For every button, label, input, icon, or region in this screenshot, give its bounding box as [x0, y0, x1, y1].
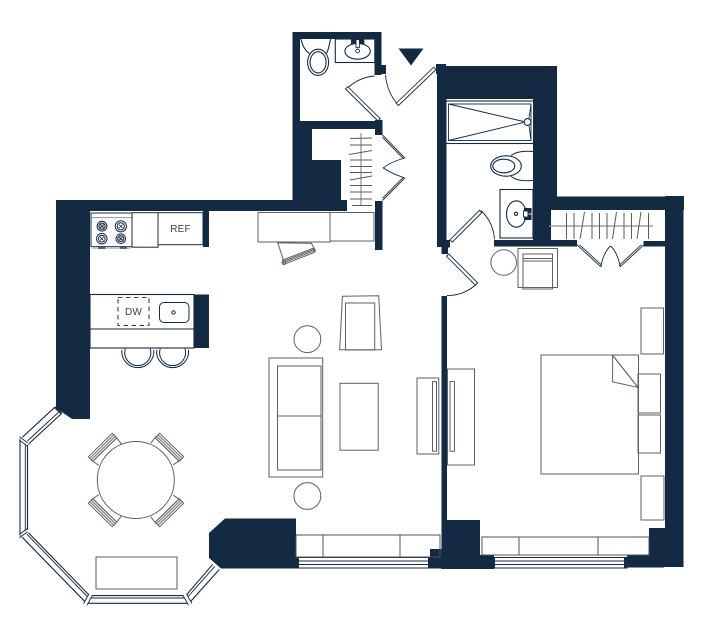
svg-text:REF: REF: [170, 224, 191, 235]
svg-text:DW: DW: [125, 307, 142, 318]
